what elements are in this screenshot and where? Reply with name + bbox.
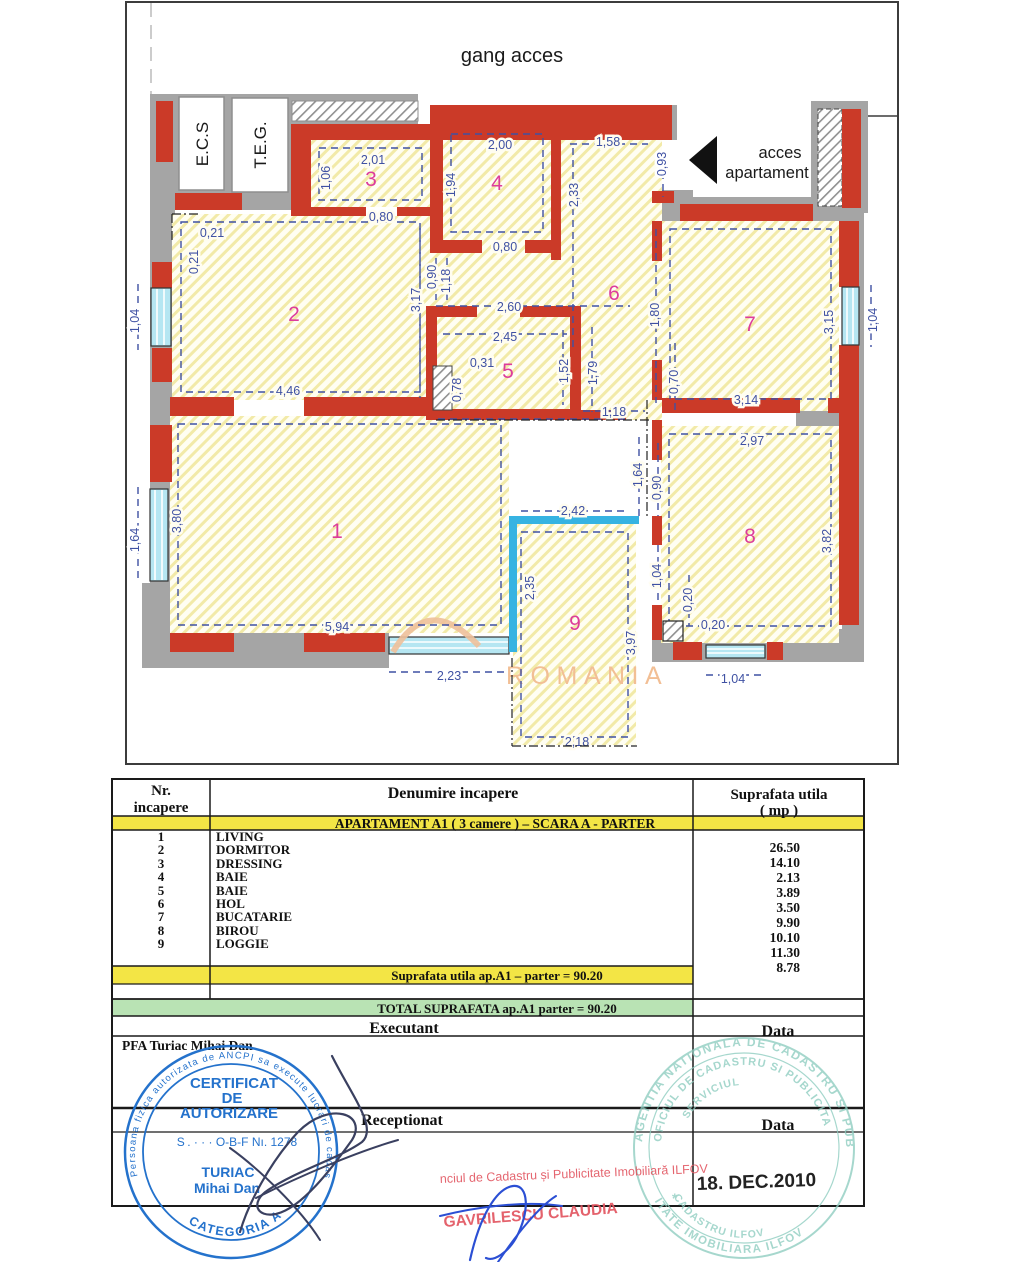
svg-text:1: 1 (331, 520, 343, 543)
svg-text:2,01: 2,01 (361, 153, 385, 167)
svg-text:2: 2 (158, 842, 165, 857)
svg-text:Executant: Executant (369, 1020, 439, 1037)
svg-text:incapere: incapere (134, 800, 189, 816)
svg-text:1,04: 1,04 (128, 309, 142, 333)
svg-text:LOGGIE: LOGGIE (216, 936, 269, 951)
svg-text:3.50: 3.50 (776, 900, 800, 915)
svg-text:2,18: 2,18 (565, 735, 589, 749)
svg-text:( mp ): ( mp ) (760, 803, 798, 819)
svg-text:4: 4 (158, 869, 165, 884)
svg-text:0,78: 0,78 (450, 378, 464, 402)
svg-text:Denumire incapere: Denumire incapere (388, 785, 519, 802)
svg-text:1,04: 1,04 (866, 308, 880, 332)
svg-text:2,60: 2,60 (497, 300, 521, 314)
svg-text:0,21: 0,21 (200, 226, 224, 240)
svg-text:ROMANIA: ROMANIA (506, 662, 668, 690)
svg-text:E.C.S: E.C.S (193, 122, 212, 166)
svg-text:2,42: 2,42 (561, 504, 585, 518)
svg-text:1,64: 1,64 (128, 528, 142, 552)
svg-text:3,17: 3,17 (409, 288, 423, 312)
svg-text:1,80: 1,80 (648, 303, 662, 327)
svg-text:APARTAMENT A1 ( 3 camere ) – S: APARTAMENT A1 ( 3 camere ) – SCARA A - P… (335, 816, 656, 831)
svg-text:9.90: 9.90 (776, 915, 800, 930)
svg-text:S . · · · O-B-F Nı. 1278: S . · · · O-B-F Nı. 1278 (177, 1135, 298, 1149)
svg-text:1,94: 1,94 (444, 173, 458, 197)
svg-text:2,00: 2,00 (488, 138, 512, 152)
svg-text:1,58: 1,58 (596, 135, 620, 149)
svg-text:6: 6 (608, 282, 620, 305)
svg-text:Suprafata utila ap.A1 – parter: Suprafata utila ap.A1 – parter = 90.20 (391, 968, 603, 983)
svg-text:11.30: 11.30 (770, 945, 800, 960)
svg-text:3,14: 3,14 (734, 393, 758, 407)
svg-text:1,04: 1,04 (650, 564, 664, 588)
svg-text:gang acces: gang acces (461, 45, 563, 67)
svg-text:nciul de Cadastru și Publicita: nciul de Cadastru și Publicitate Imobili… (440, 1162, 709, 1186)
svg-text:0,80: 0,80 (493, 240, 517, 254)
svg-text:2: 2 (288, 303, 300, 326)
svg-text:9: 9 (569, 612, 581, 635)
svg-text:10.10: 10.10 (770, 930, 801, 945)
svg-text:1,52: 1,52 (557, 359, 571, 383)
svg-text:0,21: 0,21 (187, 250, 201, 274)
svg-text:7: 7 (158, 909, 165, 924)
svg-text:3: 3 (365, 168, 377, 191)
svg-text:0,93: 0,93 (655, 152, 669, 176)
svg-text:5,94: 5,94 (325, 620, 349, 634)
svg-text:9: 9 (158, 936, 165, 951)
svg-text:0,31: 0,31 (470, 356, 494, 370)
svg-text:Data: Data (762, 1117, 795, 1134)
svg-text:T.E.G.: T.E.G. (251, 121, 270, 168)
svg-text:BUCATARIE: BUCATARIE (216, 909, 292, 924)
svg-text:AUTORIZARE: AUTORIZARE (180, 1105, 278, 1122)
svg-text:0,80: 0,80 (369, 210, 393, 224)
svg-text:Nr.: Nr. (151, 783, 171, 799)
svg-text:3,97: 3,97 (624, 631, 638, 655)
svg-text:2.13: 2.13 (776, 870, 800, 885)
svg-text:3.89: 3.89 (776, 885, 800, 900)
svg-text:4,46: 4,46 (276, 384, 300, 398)
svg-text:7: 7 (744, 313, 756, 336)
svg-text:1,06: 1,06 (319, 166, 333, 190)
svg-text:26.50: 26.50 (770, 840, 801, 855)
svg-text:4: 4 (491, 172, 503, 195)
svg-text:apartament: apartament (725, 164, 809, 182)
svg-text:Receptionat: Receptionat (361, 1112, 443, 1129)
svg-text:Suprafata utila: Suprafata utila (730, 787, 828, 803)
svg-text:14.10: 14.10 (770, 855, 801, 870)
svg-text:3,80: 3,80 (170, 509, 184, 533)
svg-text:1,64: 1,64 (631, 463, 645, 487)
svg-text:1,18: 1,18 (602, 405, 626, 419)
svg-text:2,35: 2,35 (523, 576, 537, 600)
svg-text:8: 8 (744, 525, 756, 548)
svg-text:0,20: 0,20 (701, 618, 725, 632)
svg-text:2,97: 2,97 (740, 434, 764, 448)
svg-text:5: 5 (502, 360, 514, 383)
svg-text:2,45: 2,45 (493, 330, 517, 344)
svg-text:acces: acces (758, 144, 801, 162)
svg-text:*: * (672, 1190, 678, 1206)
svg-text:0,90: 0,90 (650, 476, 664, 500)
svg-text:18. DEC.2010: 18. DEC.2010 (696, 1170, 816, 1195)
svg-text:BAIE: BAIE (216, 869, 248, 884)
svg-text:0,90: 0,90 (425, 265, 439, 289)
svg-text:3,82: 3,82 (820, 529, 834, 553)
svg-text:0,70: 0,70 (667, 370, 681, 394)
svg-text:Mihai Dan: Mihai Dan (194, 1180, 260, 1196)
svg-text:2,23: 2,23 (437, 669, 461, 683)
svg-text:2,33: 2,33 (567, 183, 581, 207)
svg-text:3,15: 3,15 (822, 310, 836, 334)
svg-text:1,18: 1,18 (439, 269, 453, 293)
svg-text:TOTAL SUPRAFATA ap.A1 parter =: TOTAL SUPRAFATA ap.A1 parter = 90.20 (377, 1001, 617, 1016)
svg-text:1,04: 1,04 (721, 672, 745, 686)
svg-text:0,20: 0,20 (681, 588, 695, 612)
svg-text:TURIAC: TURIAC (202, 1164, 255, 1180)
svg-text:8.78: 8.78 (776, 960, 800, 975)
svg-text:DORMITOR: DORMITOR (216, 842, 291, 857)
svg-text:1,79: 1,79 (586, 361, 600, 385)
